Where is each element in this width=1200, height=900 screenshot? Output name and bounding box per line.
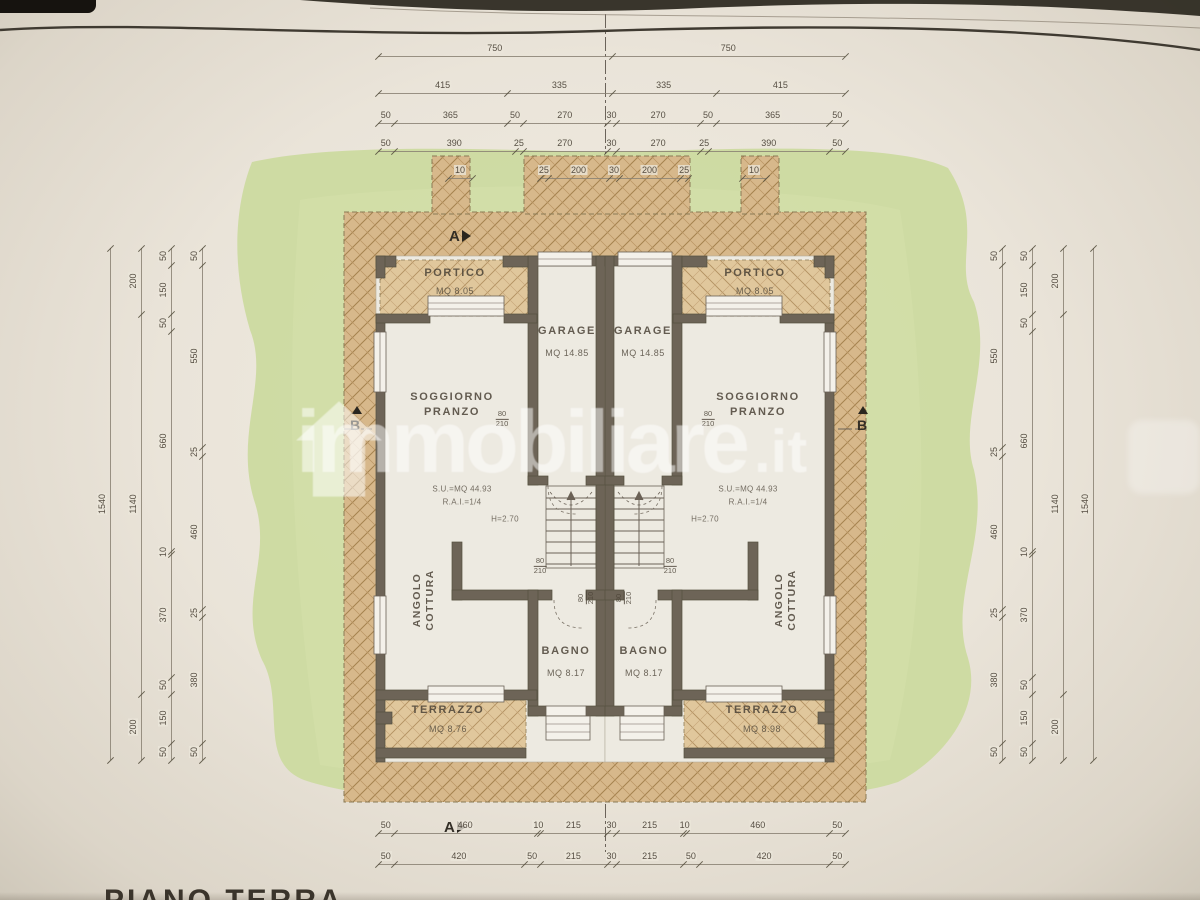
dim-label: 10 — [679, 820, 691, 830]
room-label-garage-right: GARAGE — [614, 325, 672, 337]
dim-label: 1540 — [97, 493, 107, 515]
dim-label: 10 — [532, 820, 544, 830]
dim-label: 30 — [605, 820, 617, 830]
dim-label: 50 — [380, 110, 392, 120]
dim-label: 750 — [720, 43, 737, 53]
room-label-bagno-right: BAGNO — [620, 645, 669, 657]
dim-label: 50 — [158, 679, 168, 691]
room-label-bagno-left: BAGNO — [542, 645, 591, 657]
door-dim: 80210 — [534, 557, 547, 575]
dim-line — [110, 248, 111, 760]
dim-line — [141, 248, 142, 760]
dim-label: 25 — [698, 138, 710, 148]
dim-label: 50 — [831, 851, 843, 861]
dim-label: 270 — [650, 110, 667, 120]
section-arrow-icon — [858, 406, 868, 414]
su-label-left: S.U.=MQ 44.93 — [432, 485, 491, 494]
dim-label: 50 — [831, 138, 843, 148]
dim-label: 50 — [189, 746, 199, 758]
photo-corner-strip — [0, 0, 96, 13]
dim-label: 365 — [764, 110, 781, 120]
dim-label: 335 — [551, 80, 568, 90]
dim-line — [378, 833, 845, 834]
dim-line — [171, 248, 172, 760]
dim-label: 150 — [1019, 710, 1029, 727]
dim-label: 390 — [760, 138, 777, 148]
section-marker-b-right: B — [857, 417, 867, 433]
dim-label: 25 — [513, 138, 525, 148]
dim-label: 50 — [1019, 250, 1029, 262]
rai-label-left: R.A.I.=1/4 — [443, 498, 482, 507]
room-area-garage-left: MQ 14.85 — [545, 348, 589, 358]
dim-line — [378, 123, 845, 124]
dim-label: 10 — [454, 165, 466, 175]
dim-line — [1063, 248, 1064, 760]
door-dim: 80210 — [664, 557, 677, 575]
room-label-garage-left: GARAGE — [538, 325, 596, 337]
dim-label: 370 — [1019, 607, 1029, 624]
room-area-garage-right: MQ 14.85 — [621, 348, 665, 358]
room-label-terrazzo-left: TERRAZZO — [412, 704, 485, 716]
dim-label: 50 — [702, 110, 714, 120]
dim-label: 200 — [641, 165, 658, 175]
dim-label: 460 — [189, 524, 199, 541]
room-label-angolo-left: ANGOLOCOTTURA — [411, 569, 437, 630]
dim-label: 420 — [756, 851, 773, 861]
dim-label: 1140 — [128, 493, 138, 514]
dim-label: 200 — [570, 165, 587, 175]
dim-label: 380 — [989, 672, 999, 689]
dim-label: 50 — [189, 250, 199, 262]
dim-label: 150 — [1019, 281, 1029, 298]
dim-line — [1032, 248, 1033, 760]
dim-label: 1540 — [1080, 493, 1090, 515]
dim-label: 50 — [380, 851, 392, 861]
dim-label: 150 — [158, 710, 168, 727]
dim-label: 50 — [526, 851, 538, 861]
room-area-terrazzo-right: MQ 8.98 — [743, 724, 781, 734]
sheet-title: PIANO TERRA — [104, 884, 344, 900]
dim-label: 380 — [189, 672, 199, 689]
dim-label: 550 — [189, 348, 199, 365]
dim-label: 25 — [989, 446, 999, 458]
dim-label: 270 — [650, 138, 667, 148]
dim-label: 365 — [442, 110, 459, 120]
section-marker-b-left: B — [350, 417, 360, 433]
room-label-soggiorno-right-2: PRANZO — [730, 406, 786, 418]
watermark-fragment — [1128, 420, 1200, 494]
dim-label: 50 — [1019, 679, 1029, 691]
dim-label: 50 — [1019, 317, 1029, 329]
dim-label: 390 — [446, 138, 463, 148]
dim-label: 660 — [158, 432, 168, 449]
dim-label: 200 — [128, 718, 138, 735]
dim-line — [448, 178, 472, 179]
room-label-soggiorno-right-1: SOGGIORNO — [716, 391, 799, 403]
sheet-fold-line-2 — [370, 8, 1200, 28]
dim-label: 50 — [831, 820, 843, 830]
dim-label: 50 — [509, 110, 521, 120]
dim-label: 200 — [128, 273, 138, 290]
dim-label: 30 — [608, 165, 620, 175]
dim-label: 460 — [457, 820, 474, 830]
dim-line — [378, 864, 845, 865]
su-label-right: S.U.=MQ 44.93 — [718, 485, 777, 494]
dim-label: 335 — [655, 80, 672, 90]
dim-label: 415 — [434, 80, 451, 90]
dim-label: 50 — [158, 317, 168, 329]
room-area-portico-right: MQ 8.05 — [736, 286, 774, 296]
dim-label: 215 — [565, 820, 582, 830]
dim-label: 460 — [749, 820, 766, 830]
dim-line — [378, 151, 845, 152]
rai-label-right: R.A.I.=1/4 — [729, 498, 768, 507]
section-arrow-icon — [462, 230, 471, 242]
room-label-soggiorno-left-2: PRANZO — [424, 406, 480, 418]
room-label-terrazzo-right: TERRAZZO — [726, 704, 799, 716]
door-dim: 80210 — [615, 592, 633, 605]
dim-label: 50 — [158, 746, 168, 758]
dim-label: 415 — [772, 80, 789, 90]
dim-label: 215 — [565, 851, 582, 861]
dim-label: 200 — [1050, 718, 1060, 735]
dim-line — [742, 178, 766, 179]
dim-label: 660 — [1019, 432, 1029, 449]
dim-label: 270 — [556, 138, 573, 148]
dim-label: 50 — [1019, 746, 1029, 758]
dim-label: 30 — [605, 138, 617, 148]
dim-label: 50 — [989, 746, 999, 758]
door-dim: 80210 — [577, 592, 595, 605]
door-dim: 80210 — [496, 410, 509, 428]
room-area-portico-left: MQ 8.05 — [436, 286, 474, 296]
dim-line — [202, 248, 203, 760]
dim-label: 550 — [989, 348, 999, 365]
dim-label: 25 — [989, 607, 999, 619]
dim-label: 50 — [380, 820, 392, 830]
sheet-fold-line — [0, 27, 1200, 50]
room-area-terrazzo-left: MQ 8.76 — [429, 724, 467, 734]
dim-label: 30 — [605, 110, 617, 120]
dim-label: 215 — [641, 851, 658, 861]
dim-label: 10 — [158, 546, 168, 558]
dim-label: 420 — [450, 851, 467, 861]
dim-label: 50 — [158, 250, 168, 262]
dim-label: 25 — [538, 165, 550, 175]
dim-label: 215 — [641, 820, 658, 830]
room-label-portico-left: PORTICO — [424, 267, 485, 279]
dim-label: 25 — [189, 446, 199, 458]
room-label-angolo-right: ANGOLOCOTTURA — [773, 569, 799, 630]
dim-label: 50 — [685, 851, 697, 861]
dim-label: 10 — [748, 165, 760, 175]
section-arrow-icon — [352, 406, 362, 414]
photo-edge-band — [300, 0, 1200, 16]
dim-label: 750 — [486, 43, 503, 53]
dim-label: 200 — [1050, 273, 1060, 290]
dim-label: 150 — [158, 281, 168, 298]
dim-label: 50 — [989, 250, 999, 262]
plan-drawing — [0, 0, 1200, 900]
dim-line — [1002, 248, 1003, 760]
room-area-bagno-left: MQ 8.17 — [547, 668, 585, 678]
dim-label: 25 — [189, 607, 199, 619]
height-label-right: H=2.70 — [691, 515, 719, 524]
room-label-portico-right: PORTICO — [724, 267, 785, 279]
dim-label: 460 — [989, 524, 999, 541]
height-label-left: H=2.70 — [491, 515, 519, 524]
door-dim: 80210 — [702, 410, 715, 428]
room-label-soggiorno-left-1: SOGGIORNO — [410, 391, 493, 403]
dim-label: 370 — [158, 607, 168, 624]
dim-label: 25 — [678, 165, 690, 175]
dim-label: 1140 — [1050, 493, 1060, 514]
dim-label: 30 — [605, 851, 617, 861]
dim-label: 50 — [380, 138, 392, 148]
dim-line — [1093, 248, 1094, 760]
dim-label: 270 — [556, 110, 573, 120]
section-marker-a-top: A — [449, 228, 471, 245]
dim-label: 50 — [831, 110, 843, 120]
dim-label: 10 — [1019, 546, 1029, 558]
floor-plan-photo: PORTICO MQ 8.05 GARAGE MQ 14.85 SOGGIORN… — [0, 0, 1200, 900]
room-area-bagno-right: MQ 8.17 — [625, 668, 663, 678]
dim-line — [540, 178, 688, 179]
